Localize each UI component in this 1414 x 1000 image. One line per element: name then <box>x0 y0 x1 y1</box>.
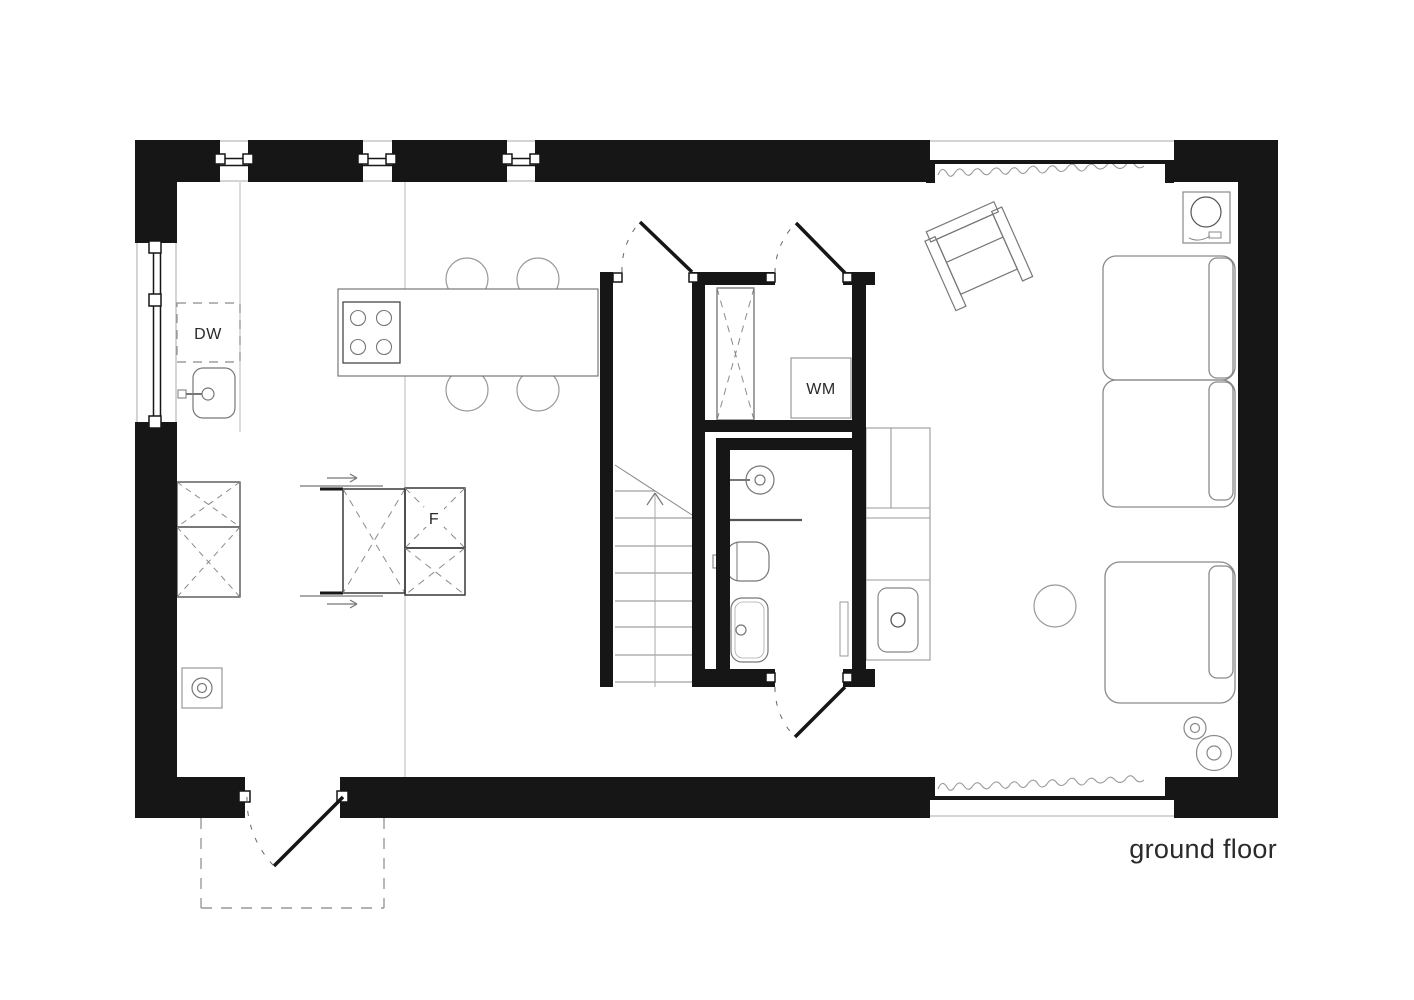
window-top-2 <box>358 141 396 181</box>
windows <box>137 141 1174 816</box>
porch-outline <box>201 818 384 908</box>
sofa-lower <box>1105 562 1235 703</box>
jamb-block <box>689 273 698 282</box>
exterior-wall-top <box>535 140 930 182</box>
tall-cabinet-1 <box>177 482 240 527</box>
door-stair-hall <box>622 222 692 272</box>
sofa-seat-module <box>1103 380 1235 507</box>
tall-cabinet-2 <box>177 527 240 597</box>
washbasin <box>731 598 768 662</box>
living-room <box>922 192 1235 771</box>
utility-closet <box>717 288 754 420</box>
sofa-upper <box>1103 256 1235 507</box>
kitchen-sink <box>178 368 235 418</box>
dining-area <box>338 258 598 411</box>
bathroom-west-wall <box>716 438 730 669</box>
exterior-wall-bottom <box>135 777 245 818</box>
kitchen-left-column <box>177 303 240 708</box>
bathroom-south-wall <box>700 669 775 687</box>
curtain-bottom-window <box>938 776 1144 791</box>
exterior-wall-left <box>135 140 177 243</box>
door-bathroom <box>775 687 845 737</box>
bathroom <box>713 466 848 662</box>
sofa-backrest <box>1209 382 1233 500</box>
window-bottom-large <box>926 777 1174 816</box>
bathroom-radiator <box>840 602 848 656</box>
stair-break-line <box>615 465 692 515</box>
door-utility-room <box>775 223 845 273</box>
bathroom-top-wall <box>716 438 861 450</box>
sofa-backrest <box>1209 258 1233 378</box>
jamb-block <box>843 673 852 682</box>
floor-title: ground floor <box>1129 834 1277 864</box>
floor-plan-drawing: DW WM F ground floor <box>0 0 1414 1000</box>
side-table <box>1034 585 1076 627</box>
jamb-block <box>843 273 852 282</box>
core-east-wall <box>852 272 866 669</box>
utility-room <box>717 288 851 420</box>
window-top-3 <box>502 141 540 181</box>
jamb-block <box>613 273 622 282</box>
counter-sink <box>878 588 918 652</box>
washing-machine-label: WM <box>806 381 835 398</box>
east-counter <box>866 428 930 660</box>
window-top-large <box>926 141 1174 183</box>
window-top-1 <box>215 141 253 181</box>
exterior-wall-bottom <box>1174 777 1278 818</box>
armchair <box>922 200 1033 311</box>
slide-arrow-bottom <box>327 600 357 608</box>
slide-arrow-top <box>327 474 357 482</box>
jamb-block <box>766 273 775 282</box>
exterior-wall-top <box>248 140 363 182</box>
jamb-block <box>766 673 775 682</box>
floor-lamp <box>1184 717 1232 771</box>
exterior-wall-bottom <box>340 777 930 818</box>
sofa-seat-module <box>1103 256 1235 380</box>
floor-boundary-lines <box>240 182 405 777</box>
stair-wall <box>600 272 613 687</box>
exterior-wall-left <box>135 422 177 818</box>
sofa-backrest <box>1209 566 1233 678</box>
dishwasher-label: DW <box>194 326 222 343</box>
exterior-wall-right <box>1238 140 1278 818</box>
window-left-wall <box>137 241 176 428</box>
jamb-block <box>239 791 250 802</box>
wm-bath-divider-wall <box>692 420 866 432</box>
floor-plan-page: DW WM F ground floor <box>0 0 1414 1000</box>
sofa-seat-module <box>1105 562 1235 703</box>
walls <box>135 140 1278 818</box>
door-entrance <box>247 797 343 866</box>
exterior-wall-top <box>392 140 507 182</box>
low-cabinet <box>405 548 465 595</box>
wardrobe-group <box>300 474 465 608</box>
staircase <box>615 465 692 687</box>
fridge-label: F <box>429 511 439 528</box>
speaker-unit <box>1183 192 1230 243</box>
wardrobe-cabinet <box>343 489 405 593</box>
floor-appliance <box>182 668 222 708</box>
core-west-wall <box>692 272 705 687</box>
